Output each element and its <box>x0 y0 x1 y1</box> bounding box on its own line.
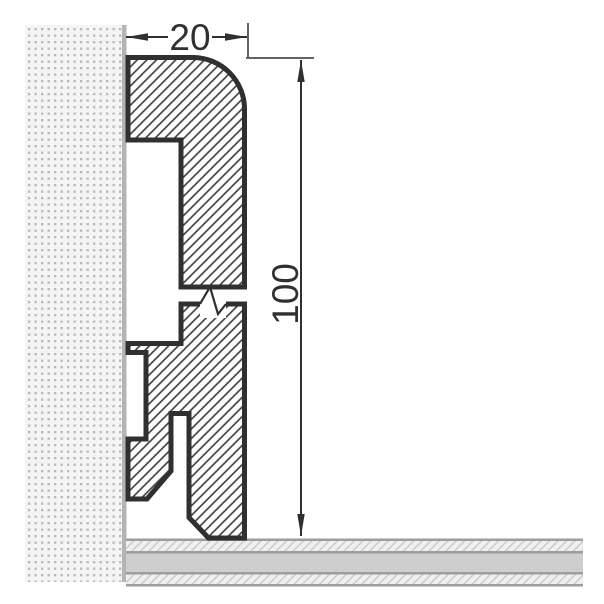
arrow-right-icon <box>225 33 247 40</box>
width-dimension: 20 <box>126 17 248 58</box>
floor-section <box>126 539 583 587</box>
arrow-left-icon <box>126 33 148 40</box>
floor-bottom-hatch-layer <box>126 575 583 585</box>
height-dimension-label: 100 <box>265 263 306 325</box>
arrow-up-icon <box>297 60 304 82</box>
arrow-down-icon <box>297 514 304 536</box>
skirting-profile-upper <box>128 58 245 288</box>
floor-top-hatch-layer <box>126 541 583 551</box>
break-mark <box>200 287 226 318</box>
technical-drawing: 20 100 <box>0 0 604 604</box>
wall-section <box>25 25 122 582</box>
skirting-profile-lower <box>128 304 245 538</box>
height-dimension: 100 <box>246 58 314 536</box>
floor-middle-layer <box>126 554 583 573</box>
drawing-canvas: 20 100 <box>0 0 604 604</box>
width-dimension-label: 20 <box>169 17 210 58</box>
